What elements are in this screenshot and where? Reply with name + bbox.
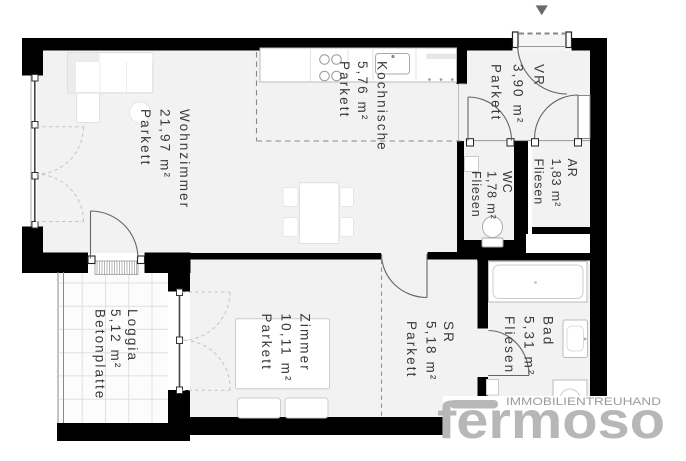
svg-text:21,97 m²: 21,97 m²: [158, 109, 173, 179]
svg-text:Fliesen: Fliesen: [469, 171, 483, 218]
svg-text:Parkett: Parkett: [337, 61, 352, 118]
svg-text:1,78 m²: 1,78 m²: [485, 171, 499, 220]
svg-text:Betonplatte: Betonplatte: [93, 309, 108, 400]
svg-text:Parkett: Parkett: [259, 314, 274, 371]
svg-text:Loggia: Loggia: [125, 309, 140, 362]
svg-text:Parkett: Parkett: [404, 321, 419, 378]
svg-text:1,83 m²: 1,83 m²: [549, 159, 563, 208]
svg-text:Parkett: Parkett: [138, 109, 153, 166]
svg-text:5,18 m²: 5,18 m²: [423, 321, 438, 381]
svg-text:10,11 m²: 10,11 m²: [278, 314, 293, 383]
svg-text:Wohnzimmer: Wohnzimmer: [177, 109, 192, 209]
svg-text:Zimmer: Zimmer: [297, 314, 312, 372]
svg-text:5,76 m²: 5,76 m²: [355, 61, 370, 121]
svg-text:5,31 m²: 5,31 m²: [521, 316, 536, 376]
svg-text:Kochnische: Kochnische: [375, 61, 390, 152]
svg-text:Fliesen: Fliesen: [531, 159, 545, 206]
svg-text:Bad: Bad: [541, 316, 556, 346]
svg-text:5,12 m²: 5,12 m²: [108, 309, 123, 369]
svg-text:VR: VR: [532, 64, 547, 87]
svg-text:Fliesen: Fliesen: [502, 316, 517, 374]
svg-text:fermoso: fermoso: [437, 392, 665, 450]
svg-text:AR: AR: [565, 159, 579, 178]
svg-text:SR: SR: [441, 321, 456, 344]
svg-text:Parkett: Parkett: [489, 64, 504, 121]
svg-text:3,90 m²: 3,90 m²: [511, 64, 526, 124]
svg-text:WC: WC: [500, 171, 514, 194]
